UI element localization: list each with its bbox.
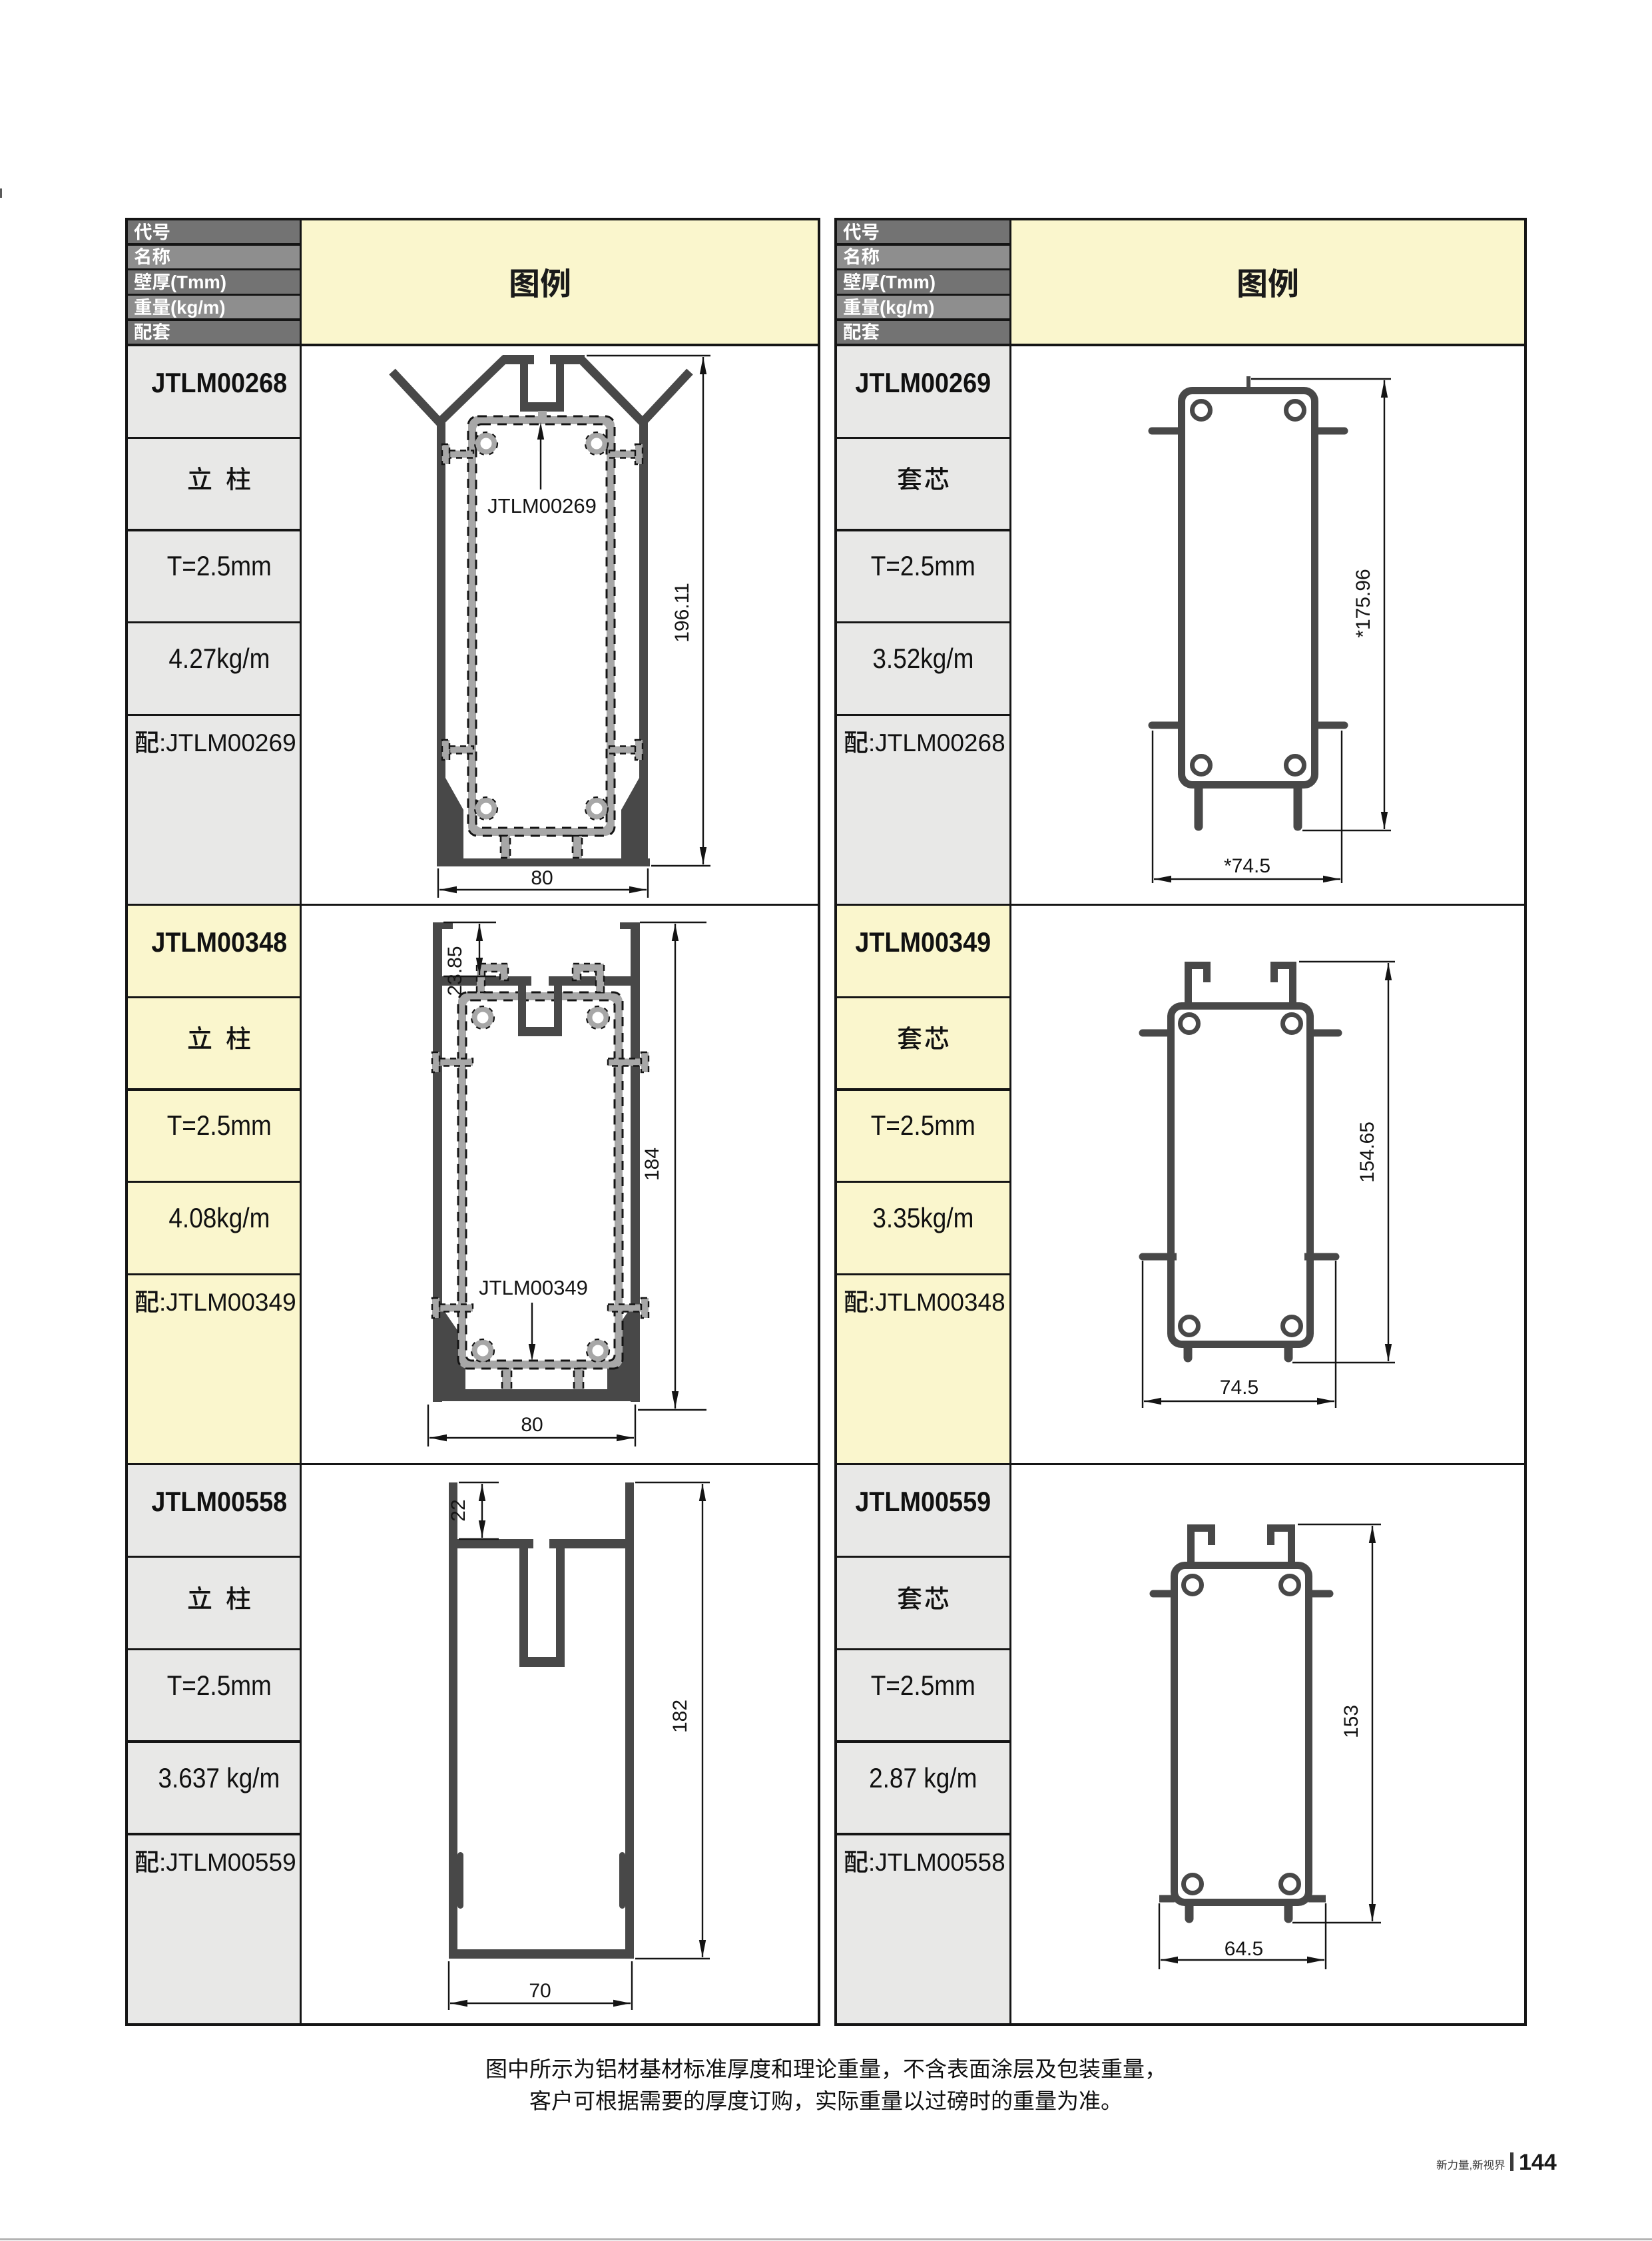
svg-text:22: 22 [447, 1499, 469, 1521]
svg-text:64.5: 64.5 [1225, 1938, 1263, 1960]
svg-text:70: 70 [529, 1980, 551, 2002]
svg-text:23.85: 23.85 [444, 946, 466, 996]
svg-text:154.65: 154.65 [1356, 1121, 1378, 1183]
svg-text:80: 80 [531, 867, 553, 889]
svg-text:153: 153 [1340, 1705, 1362, 1738]
svg-text::JTLM00268: :JTLM00268 [868, 729, 1005, 757]
svg-text:*175.96: *175.96 [1352, 569, 1374, 637]
svg-text:(Tmm): (Tmm) [880, 272, 936, 292]
svg-text::JTLM00349: :JTLM00349 [159, 1289, 296, 1316]
svg-text:*74.5: *74.5 [1224, 855, 1270, 877]
svg-text:80: 80 [521, 1414, 543, 1436]
svg-text:JTLM00349: JTLM00349 [479, 1276, 588, 1299]
svg-text::JTLM00348: :JTLM00348 [868, 1289, 1005, 1316]
svg-text:(kg/m): (kg/m) [170, 297, 226, 318]
svg-text:196.11: 196.11 [671, 583, 693, 643]
svg-text:74.5: 74.5 [1220, 1377, 1258, 1399]
svg-text:JTLM00269: JTLM00269 [487, 494, 597, 517]
svg-text::JTLM00558: :JTLM00558 [868, 1849, 1005, 1876]
svg-text:184: 184 [641, 1147, 663, 1181]
svg-text:(Tmm): (Tmm) [170, 272, 226, 292]
svg-text::JTLM00269: :JTLM00269 [159, 729, 296, 757]
svg-text:182: 182 [669, 1700, 691, 1733]
svg-text:(kg/m): (kg/m) [880, 297, 935, 318]
svg-text::JTLM00559: :JTLM00559 [159, 1849, 296, 1876]
